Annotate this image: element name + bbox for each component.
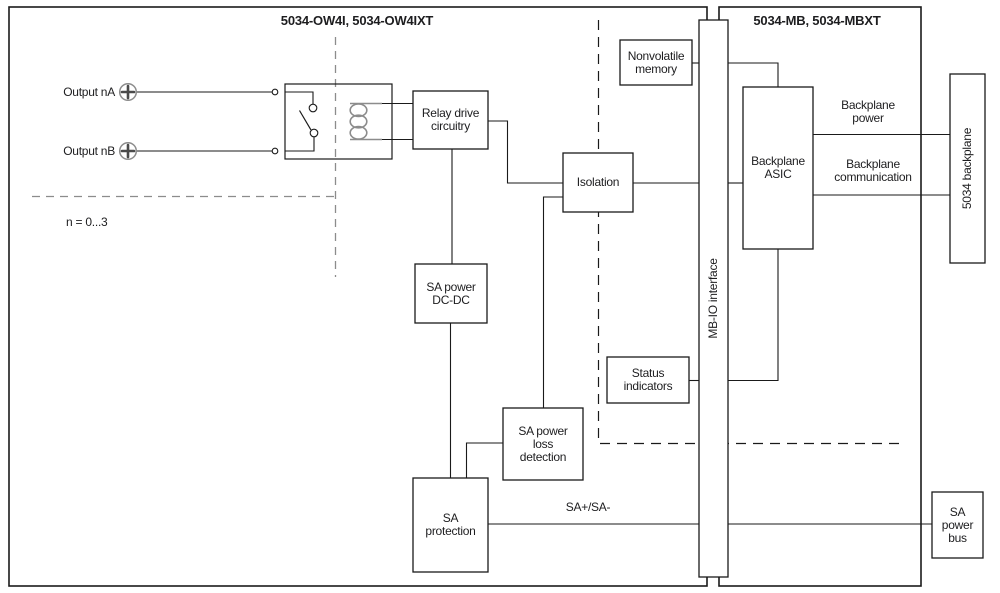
sa-loss-to-sa-protection-wire (467, 443, 504, 478)
backplane-asic-line2: ASIC (764, 168, 791, 181)
nonvolatile-memory-line2: memory (635, 63, 677, 76)
backplane-5034-label: 5034 backplane (959, 108, 976, 229)
mb-io-interface-label: MB-IO interface (705, 238, 722, 359)
diagram-canvas (0, 0, 1000, 593)
sa-power-loss-line1: SA power (518, 425, 567, 438)
sa-power-bus-label: SA power bus (932, 492, 983, 558)
output-b-label: Output nB (38, 144, 115, 158)
backplane-power-line2: power (852, 112, 883, 125)
sa-wire-text: SA+/SA- (566, 501, 611, 514)
channel-range-note: n = 0...3 (66, 215, 146, 229)
right-module-title-text: 5034-MB, 5034-MBXT (753, 14, 880, 27)
block-diagram: 5034-OW4I, 5034-OW4IXT 5034-MB, 5034-MBX… (0, 0, 1000, 593)
screw-terminal-icon-b (120, 143, 137, 160)
relay-contact-upper (309, 104, 317, 112)
status-indicators-line2: indicators (624, 380, 673, 393)
backplane-communication-label: Backplane communication (826, 154, 920, 188)
relay-symbol (272, 84, 413, 159)
sa-protection-line2: protection (425, 525, 475, 538)
left-module-title: 5034-OW4I, 5034-OW4IXT (252, 12, 462, 29)
channel-range-text: n = 0...3 (66, 216, 107, 229)
sa-power-dcdc-line2: DC-DC (432, 294, 469, 307)
isolation-line1: Isolation (577, 176, 619, 189)
relay-drive-to-isolation-wire (488, 121, 563, 183)
nonvolatile-memory-label: Nonvolatile memory (620, 40, 692, 85)
terminal-node-a (272, 89, 278, 95)
sa-power-loss-line2: loss (533, 438, 553, 451)
mb-io-interface-text: MB-IO interface (707, 258, 720, 338)
relay-coil-symbol (350, 104, 382, 140)
relay-contact-blade (300, 111, 312, 131)
relay-contact-lower (310, 129, 318, 137)
sa-power-loss-line3: detection (520, 451, 566, 464)
left-module-title-text: 5034-OW4I, 5034-OW4IXT (281, 14, 433, 27)
backplane-5034-text: 5034 backplane (961, 128, 974, 209)
sa-power-loss-label: SA power loss detection (503, 408, 583, 480)
output-a-label: Output nA (38, 85, 115, 99)
relay-drive-line2: circuitry (431, 120, 470, 133)
sa-power-bus-line1: SA (950, 506, 966, 519)
relay-contact-leads (285, 92, 314, 151)
mbio-to-asic-top-wire (728, 63, 778, 87)
output-b-text: Output nB (63, 145, 115, 158)
relay-box (285, 84, 392, 159)
screw-terminal-icon-a (120, 84, 137, 101)
relay-drive-label: Relay drive circuitry (413, 91, 488, 149)
backplane-asic-label: Backplane ASIC (743, 87, 813, 249)
sa-power-bus-line2: power (942, 519, 973, 532)
status-indicators-label: Status indicators (607, 357, 689, 403)
terminal-node-b (272, 148, 278, 154)
asic-to-mbio-bottom-wire (728, 249, 778, 381)
nonvolatile-memory-line1: Nonvolatile (628, 50, 685, 63)
backplane-communication-line2: communication (834, 171, 911, 184)
backplane-power-label: Backplane power (829, 95, 907, 129)
sa-power-dcdc-label: SA power DC-DC (415, 264, 487, 323)
isolation-to-sa-loss-wire (544, 197, 564, 408)
sa-wire-label: SA+/SA- (557, 499, 619, 515)
sa-power-dcdc-line1: SA power (426, 281, 475, 294)
sa-protection-label: SA protection (413, 478, 488, 572)
coil-to-driver-wires (382, 104, 413, 140)
right-module-title: 5034-MB, 5034-MBXT (717, 12, 917, 29)
sa-power-bus-line3: bus (948, 532, 967, 545)
isolation-label: Isolation (563, 153, 633, 212)
output-a-text: Output nA (63, 86, 115, 99)
